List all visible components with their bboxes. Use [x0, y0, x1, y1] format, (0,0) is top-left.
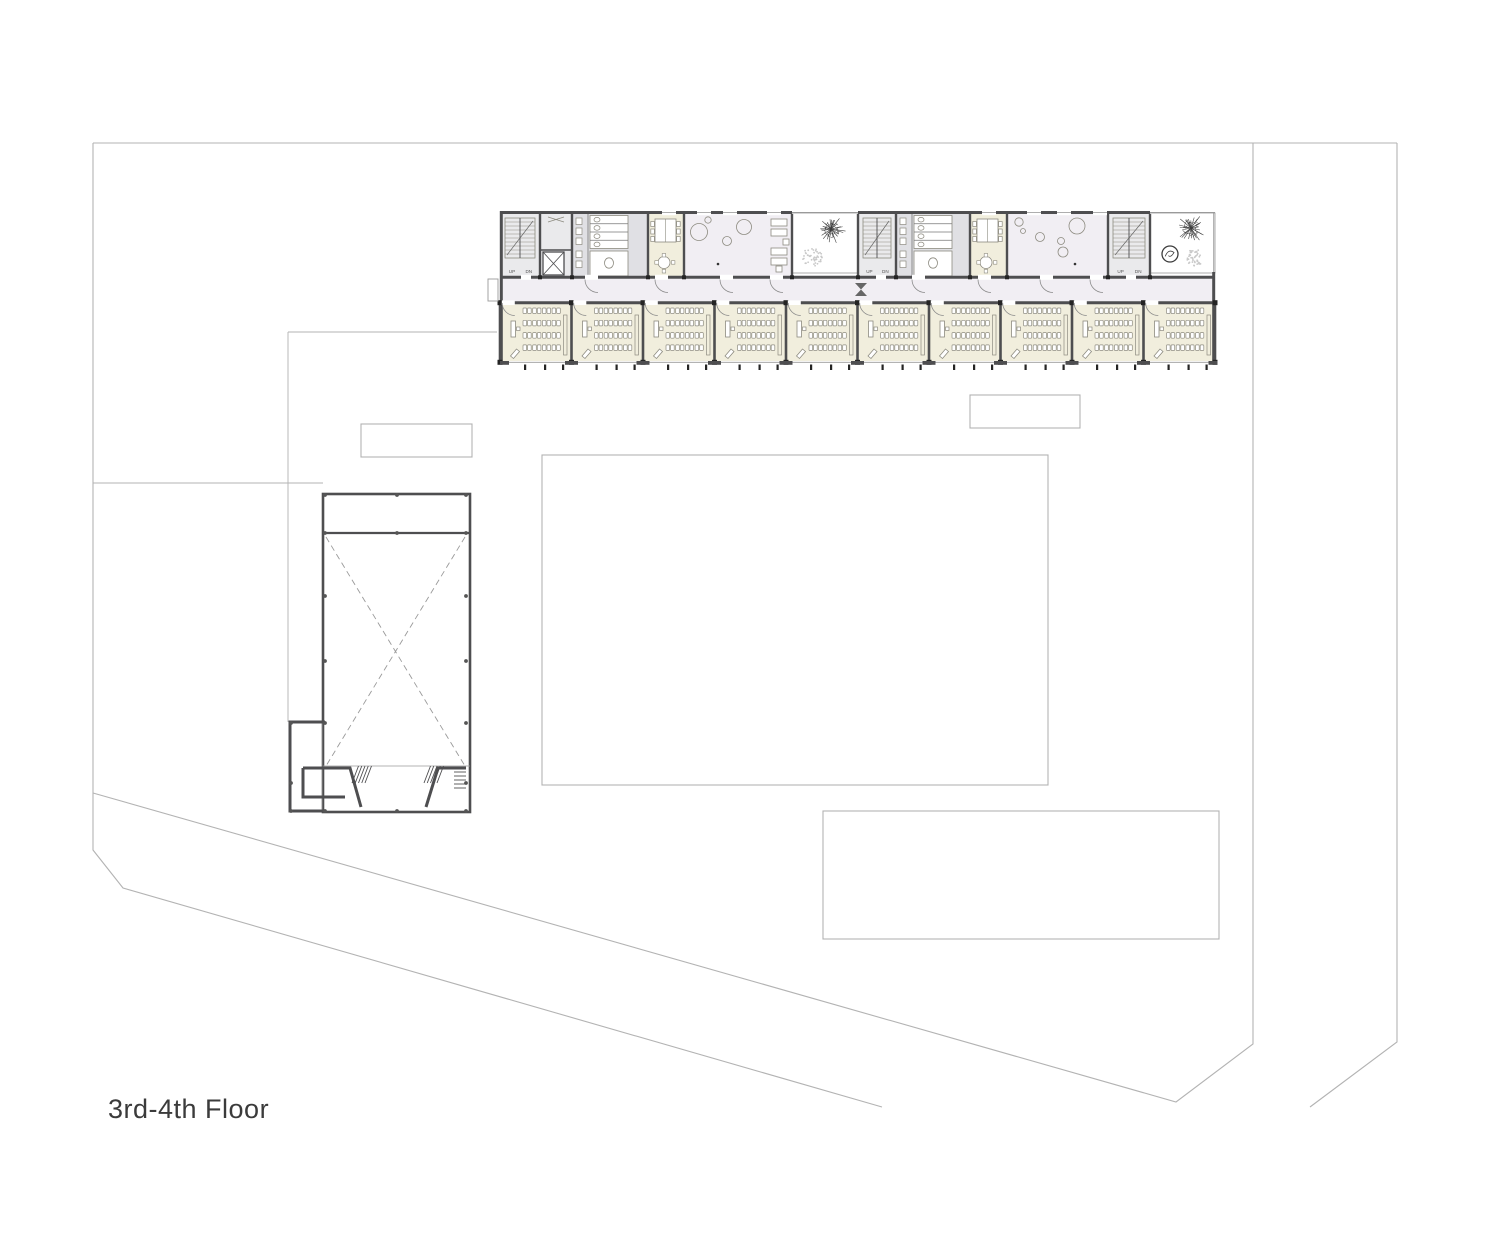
classroom	[929, 304, 1001, 361]
room-terrace	[1150, 213, 1215, 273]
floorplan-page: UPDNUPDNUPDN 3rd-4th Floor	[0, 0, 1500, 1250]
room-stair: UPDN	[1108, 214, 1150, 276]
stair-dn-label: DN	[525, 269, 532, 274]
room-hall	[684, 214, 792, 276]
classroom	[1072, 304, 1144, 361]
classroom	[715, 304, 787, 361]
room-wc	[572, 214, 648, 276]
courtyard-rect	[542, 455, 1048, 785]
main-building: UPDNUPDNUPDN	[488, 210, 1218, 370]
room-stair: UPDN	[858, 214, 896, 276]
room-elevator	[540, 214, 572, 276]
classroom	[1001, 304, 1073, 361]
corridor	[500, 279, 1215, 303]
classroom	[1144, 304, 1216, 361]
room-terrace	[792, 213, 858, 273]
classroom	[858, 304, 930, 361]
classroom	[572, 304, 644, 361]
stair-up-label: UP	[866, 269, 872, 274]
room-stair: UPDN	[500, 214, 540, 276]
room-seminar	[648, 214, 684, 276]
room-wc	[896, 214, 970, 276]
site-rect-west	[361, 424, 472, 457]
site-rect-south	[823, 811, 1219, 939]
stair-dn-label: DN	[1135, 269, 1142, 274]
stair-up-label: UP	[509, 269, 515, 274]
site-rect-east	[970, 395, 1080, 428]
corridor-balcony	[488, 279, 498, 301]
classroom	[500, 304, 572, 361]
classroom	[786, 304, 858, 361]
floor-label: 3rd-4th Floor	[108, 1094, 269, 1125]
floorplan-drawing: UPDNUPDNUPDN	[0, 0, 1500, 1250]
gym-building	[289, 493, 470, 813]
room-seminar	[970, 214, 1007, 276]
bush-icon	[1162, 246, 1178, 262]
classroom	[643, 304, 715, 361]
stair-up-label: UP	[1117, 269, 1123, 274]
room-hall	[1007, 214, 1108, 276]
stair-dn-label: DN	[882, 269, 889, 274]
